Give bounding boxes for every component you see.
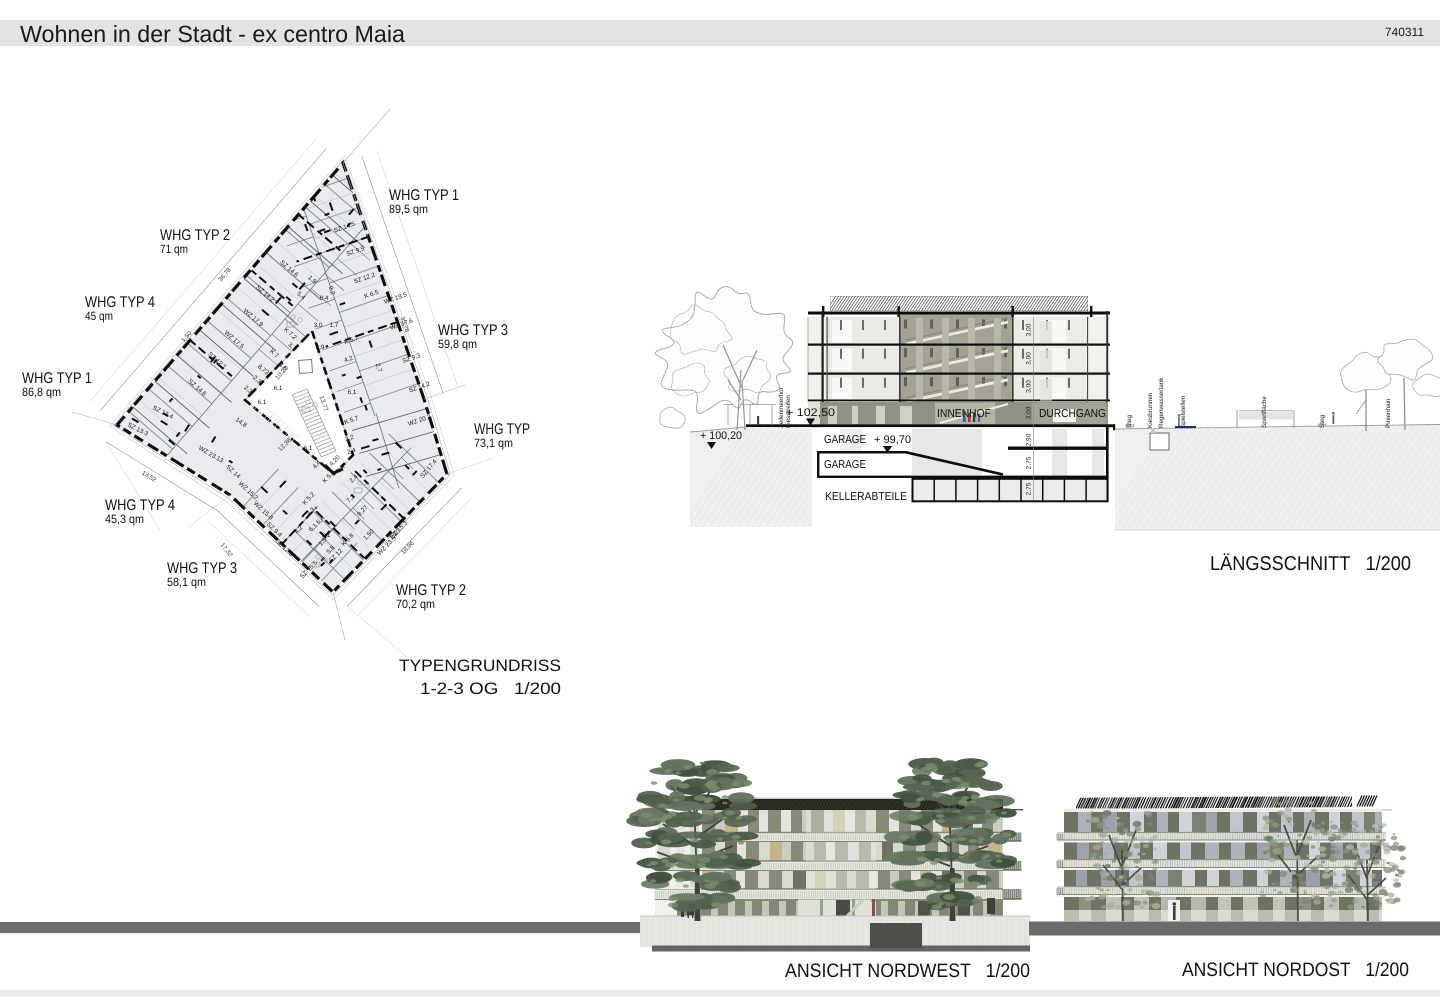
svg-text:GARAGE: GARAGE [824, 459, 866, 471]
svg-text:86,8 qm: 86,8 qm [22, 385, 61, 399]
svg-text:3,00: 3,00 [1026, 380, 1033, 393]
svg-text:6,1: 6,1 [258, 399, 267, 406]
svg-text:6,1: 6,1 [274, 385, 283, 392]
svg-text:6,1: 6,1 [348, 389, 357, 396]
svg-text:Zeilenmeerhof: Zeilenmeerhof [778, 387, 785, 428]
svg-text:TYPENGRUNDRISS: TYPENGRUNDRISS [399, 657, 561, 675]
svg-text:70,2 qm: 70,2 qm [396, 597, 435, 611]
svg-text:3,00: 3,00 [1026, 352, 1033, 365]
svg-text:Kiesstreifen: Kiesstreifen [785, 395, 792, 428]
svg-text:ANSICHT NORDWEST 1/200: ANSICHT NORDWEST 1/200 [785, 960, 1030, 982]
svg-text:KELLERABTEILE: KELLERABTEILE [825, 491, 907, 503]
svg-text:3,0: 3,0 [314, 322, 323, 329]
svg-text:+ 100,20: + 100,20 [700, 430, 742, 442]
svg-text:Wohnen in der Stadt - ex centr: Wohnen in der Stadt - ex centro Maia [20, 21, 406, 47]
svg-text:3,00: 3,00 [1026, 323, 1033, 336]
svg-text:Sportfläche: Sportfläche [1261, 396, 1268, 428]
svg-text:INNENHOF: INNENHOF [937, 408, 991, 420]
svg-text:+ 99,70: + 99,70 [874, 434, 911, 446]
svg-text:Kiesbrunnen: Kiesbrunnen [1147, 392, 1154, 428]
svg-text:58,1 qm: 58,1 qm [167, 575, 206, 589]
svg-text:45,3 qm: 45,3 qm [105, 512, 144, 526]
svg-text:2,90: 2,90 [1026, 433, 1033, 446]
svg-text:6,1: 6,1 [304, 445, 313, 452]
svg-text:1,7: 1,7 [330, 322, 339, 329]
svg-text:2,75: 2,75 [1026, 456, 1033, 469]
svg-text:89,5 qm: 89,5 qm [389, 202, 428, 216]
svg-text:Steg: Steg [1319, 415, 1326, 428]
svg-text:+ 102,50: + 102,50 [786, 407, 835, 419]
svg-text:73,1 qm: 73,1 qm [474, 436, 513, 450]
svg-text:GARAGE: GARAGE [824, 434, 866, 446]
svg-text:Regenwassertank: Regenwassertank [1158, 377, 1165, 428]
svg-text:71 qm: 71 qm [160, 242, 188, 256]
svg-text:3,9: 3,9 [316, 344, 325, 351]
svg-text:59,8 qm: 59,8 qm [438, 337, 477, 351]
svg-text:Steg: Steg [1126, 415, 1133, 428]
svg-text:2,75: 2,75 [1026, 482, 1033, 495]
svg-text:ANSICHT NORDOST 1/200: ANSICHT NORDOST 1/200 [1182, 959, 1409, 981]
svg-text:LÄNGSSCHNITT 1/200: LÄNGSSCHNITT 1/200 [1210, 553, 1411, 575]
svg-text:Pinienhain: Pinienhain [1385, 398, 1392, 428]
svg-text:1-2-3 OG 1/200: 1-2-3 OG 1/200 [420, 680, 561, 698]
svg-text:Spielstellen: Spielstellen [1180, 395, 1187, 428]
svg-text:DURCHGANG: DURCHGANG [1039, 408, 1106, 420]
svg-text:740311: 740311 [1385, 25, 1424, 39]
svg-text:45 qm: 45 qm [85, 309, 113, 323]
svg-text:6,1: 6,1 [322, 532, 331, 539]
svg-text:3,00: 3,00 [1026, 406, 1033, 419]
svg-text:8,4: 8,4 [320, 295, 329, 302]
